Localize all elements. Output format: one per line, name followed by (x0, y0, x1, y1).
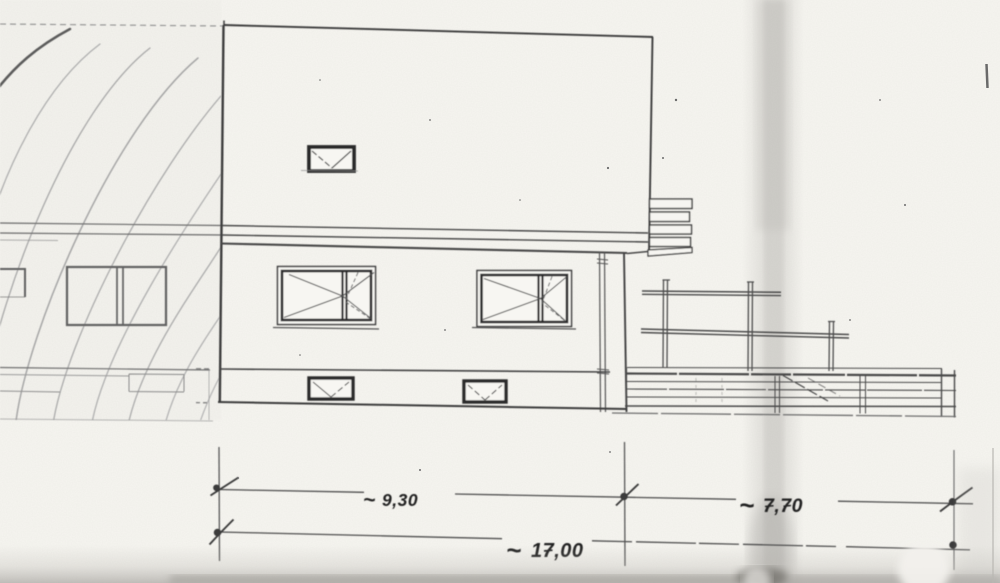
svg-text:~: ~ (363, 489, 375, 512)
svg-text:9,30: 9,30 (382, 490, 418, 510)
svg-text:~: ~ (739, 490, 754, 520)
